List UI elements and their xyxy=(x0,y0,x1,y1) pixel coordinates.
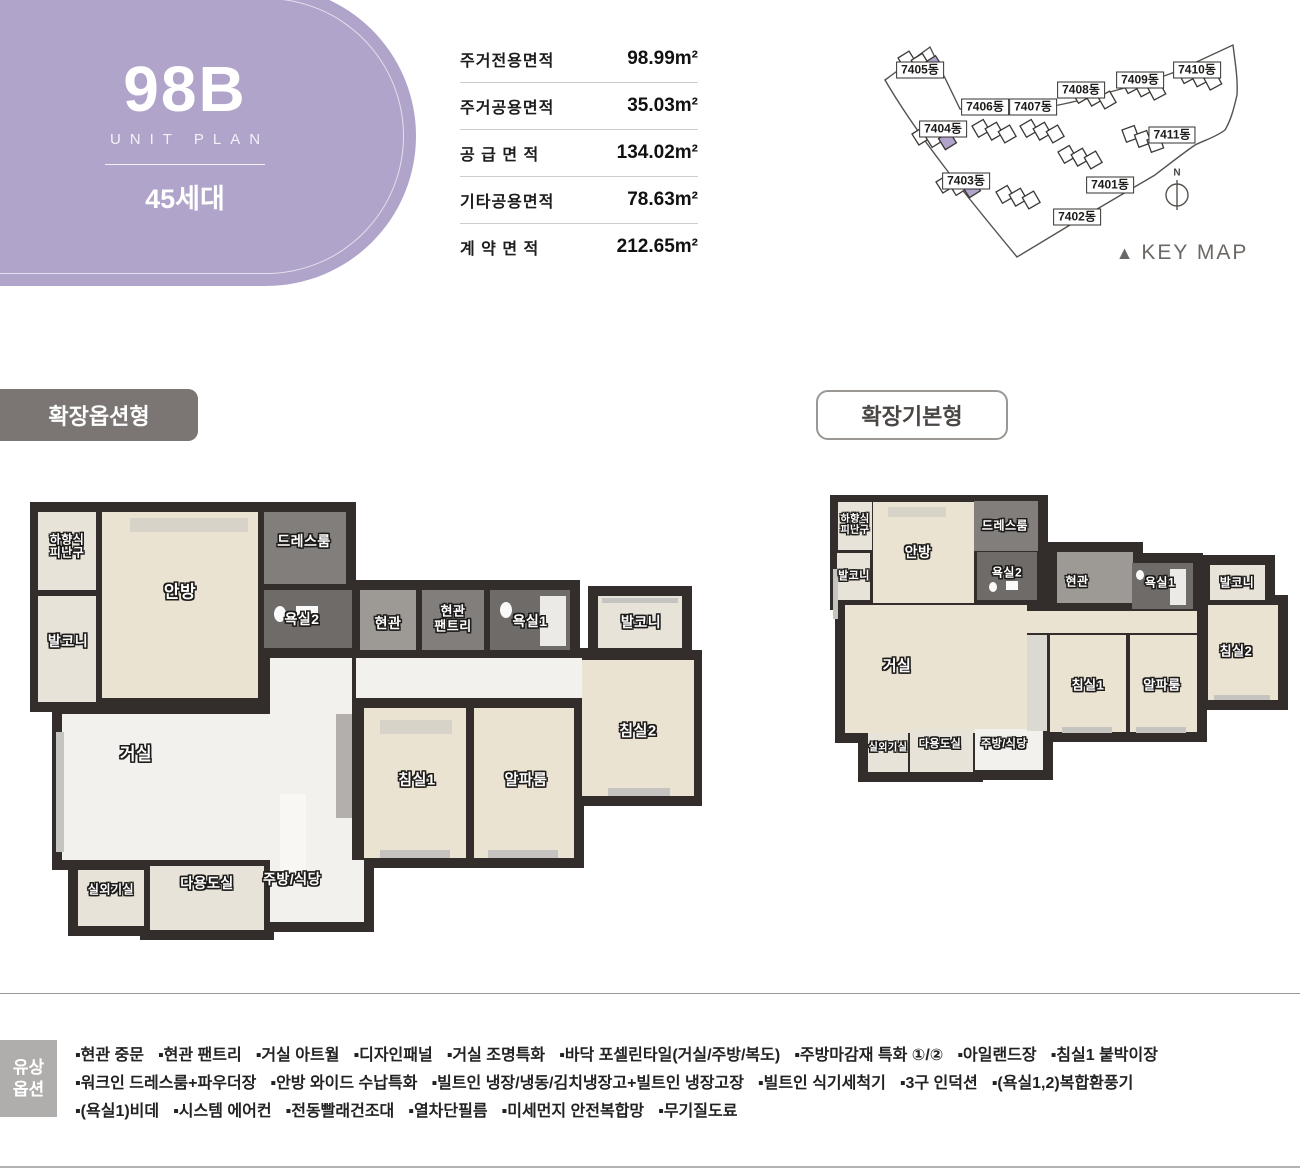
room-label: 드레스룸 xyxy=(277,534,331,550)
paid-option-item: ▪거실 조명특화 xyxy=(447,1047,545,1064)
plan-detail xyxy=(1006,581,1018,590)
paid-option-item: ▪아일랜드장 xyxy=(957,1047,1036,1064)
room-floor xyxy=(910,729,973,772)
area-row-value: 35.03m² xyxy=(627,95,698,117)
area-table: 주거전용면적 98.99m² 주거공용면적 35.03m² 공 급 면 적 13… xyxy=(460,36,698,270)
plan-detail xyxy=(380,720,452,734)
keymap-building-label: 7410동 xyxy=(1173,62,1221,79)
keymap-building xyxy=(996,176,1040,219)
section-divider-bottom xyxy=(0,1166,1300,1168)
room-floor xyxy=(356,658,582,698)
area-row-label: 주거전용면적 xyxy=(460,47,554,71)
room-label: 드레스룸 xyxy=(982,519,1028,532)
paid-options-title-line: 옵션 xyxy=(13,1079,44,1100)
room-floor xyxy=(270,658,352,718)
plan-detail xyxy=(1062,727,1112,733)
keymap-building xyxy=(1058,136,1102,179)
paid-option-item: ▪빌트인 식기세척기 xyxy=(758,1075,886,1092)
room-label: 발코니 xyxy=(621,615,661,631)
area-row-label: 공 급 면 적 xyxy=(460,141,539,165)
room-label: 침실2 xyxy=(1220,645,1253,660)
paid-options-line: ▪(욕실1)비데▪시스템 에어컨▪전동빨래건조대▪열차단필름▪미세먼지 안전복합… xyxy=(75,1098,1295,1126)
keymap-building-unit xyxy=(998,125,1016,143)
room-label: 발코니 xyxy=(48,634,88,650)
paid-option-item: ▪현관 팬트리 xyxy=(158,1047,242,1064)
floor-plan-basic: 하향식 피난구발코니안방드레스룸욕실2현관욕실1발코니침실2거실침실1알파룸실외… xyxy=(830,495,1290,795)
room-label: 욕실2 xyxy=(284,612,319,628)
plan-detail xyxy=(1027,635,1047,731)
room-floor xyxy=(1027,611,1197,633)
room-label: 알파룸 xyxy=(505,773,548,790)
paid-option-item: ▪열차단필름 xyxy=(408,1103,487,1120)
room-label: 하향식 피난구 xyxy=(840,514,869,536)
plan-detail xyxy=(56,732,64,852)
keymap-building-unit xyxy=(1084,151,1102,169)
room-floor xyxy=(62,714,352,860)
keymap-building-unit xyxy=(1046,125,1064,143)
paid-option-item: ▪바닥 포셀린타일(거실/주방/복도) xyxy=(559,1047,780,1064)
keymap-building-label: 7401동 xyxy=(1086,177,1134,194)
room-label: 침실2 xyxy=(619,724,656,741)
keymap-triangle-icon: ▲ xyxy=(1116,243,1136,263)
room-floor xyxy=(78,870,144,926)
paid-options-line: ▪워크인 드레스룸+파우더장▪안방 와이드 수납특화▪빌트인 냉장/냉동/김치냉… xyxy=(75,1070,1295,1098)
area-row-label: 주거공용면적 xyxy=(460,94,554,118)
plan-detail xyxy=(380,850,450,858)
area-row: 주거공용면적 35.03m² xyxy=(460,83,698,130)
plan-detail xyxy=(1214,695,1270,700)
unit-code: 98B xyxy=(123,57,246,121)
section-divider-top xyxy=(0,993,1300,994)
unit-badge: 98B UNIT PLAN 45세대 xyxy=(0,0,416,286)
keymap-building-label: 7408동 xyxy=(1057,82,1105,99)
plan-detail xyxy=(280,794,306,874)
plan-tag-basic: 확장기본형 xyxy=(816,390,1008,440)
keymap-building-unit xyxy=(1022,191,1040,209)
paid-options-list: ▪현관 중문▪현관 팬트리▪거실 아트월▪디자인패널▪거실 조명특화▪바닥 포셀… xyxy=(75,1042,1295,1126)
room-label: 현관 팬트리 xyxy=(434,604,471,633)
paid-option-item: ▪워크인 드레스룸+파우더장 xyxy=(75,1075,256,1092)
keymap-building-label: 7407동 xyxy=(1009,99,1057,116)
floor-plan-option: 하향식 피난구발코니안방드레스룸욕실2현관현관 팬트리욕실1발코니침실2거실침실… xyxy=(30,492,702,944)
paid-option-item: ▪3구 인덕션 xyxy=(900,1075,978,1092)
room-label: 주방/식당 xyxy=(981,738,1027,750)
paid-option-item: ▪(욕실1,2)복합환풍기 xyxy=(992,1075,1134,1092)
paid-option-item: ▪거실 아트월 xyxy=(256,1047,340,1064)
room-label: 거실 xyxy=(883,659,912,676)
keymap-building xyxy=(1020,110,1064,153)
area-row-label: 기타공용면적 xyxy=(460,188,554,212)
keymap-building-label: 7402동 xyxy=(1053,209,1101,226)
plan-detail xyxy=(608,788,670,796)
unit-subtitle: UNIT PLAN xyxy=(101,131,269,148)
plan-detail xyxy=(336,714,352,818)
paid-option-item: ▪무기질도료 xyxy=(658,1103,737,1120)
keymap-building-label: 7405동 xyxy=(896,62,944,79)
room-label: 다용도실 xyxy=(919,738,961,750)
plan-detail xyxy=(130,518,248,532)
paid-option-item: ▪미세먼지 안전복합망 xyxy=(502,1103,645,1120)
room-label: 욕실1 xyxy=(1145,576,1175,589)
room-label: 현관 xyxy=(375,616,402,632)
room-label: 주방/식당 xyxy=(263,872,321,888)
paid-option-item: ▪전동빨래건조대 xyxy=(286,1103,395,1120)
area-row: 계 약 면 적 212.65m² xyxy=(460,224,698,270)
area-row: 기타공용면적 78.63m² xyxy=(460,177,698,224)
bath-fixture xyxy=(1136,570,1144,580)
keymap-caption: ▲KEY MAP xyxy=(1116,241,1249,265)
room-label: 실외기실 xyxy=(869,742,908,753)
room-label: 발코니 xyxy=(838,570,870,582)
paid-option-item: ▪안방 와이드 수납특화 xyxy=(270,1075,417,1092)
keymap-building xyxy=(972,110,1016,153)
paid-option-item: ▪현관 중문 xyxy=(75,1047,144,1064)
keymap-caption-text: KEY MAP xyxy=(1141,241,1248,264)
room-label: 알파룸 xyxy=(1143,679,1180,694)
paid-option-item: ▪시스템 에어컨 xyxy=(173,1103,271,1120)
unit-plan-page: 98B UNIT PLAN 45세대 주거전용면적 98.99m² 주거공용면적… xyxy=(0,0,1300,1172)
room-label: 실외기실 xyxy=(88,883,134,896)
paid-options-title: 유상 옵션 xyxy=(0,1040,57,1117)
paid-option-item: ▪침실1 붙박이장 xyxy=(1051,1047,1158,1064)
paid-option-item: ▪주방마감재 특화 ①/② xyxy=(794,1047,943,1064)
keymap-building-label: 7404동 xyxy=(919,121,967,138)
paid-option-item: ▪빌트인 냉장/냉동/김치냉장고+빌트인 냉장고장 xyxy=(431,1075,743,1092)
room-label: 다용도실 xyxy=(180,876,234,892)
plan-tag-option: 확장옵션형 xyxy=(0,389,198,441)
paid-options-line: ▪현관 중문▪현관 팬트리▪거실 아트월▪디자인패널▪거실 조명특화▪바닥 포셀… xyxy=(75,1042,1295,1070)
plan-detail xyxy=(488,850,558,858)
key-map: N 7405동7406동7407동7408동7409동7410동7404동741… xyxy=(860,30,1295,280)
room-label: 하향식 피난구 xyxy=(50,534,85,561)
keymap-building-label: 7411동 xyxy=(1148,127,1195,144)
paid-options-title-line: 유상 xyxy=(13,1057,44,1078)
room-label: 현관 xyxy=(1065,575,1088,588)
room-label: 침실1 xyxy=(398,773,435,790)
badge-divider xyxy=(105,164,265,165)
unit-badge-content: 98B UNIT PLAN 45세대 xyxy=(0,0,370,286)
unit-households: 45세대 xyxy=(145,177,225,216)
room-label: 발코니 xyxy=(1220,576,1255,589)
area-row-value: 78.63m² xyxy=(627,189,698,211)
room-floor xyxy=(102,512,258,698)
room-floor xyxy=(845,605,1027,733)
keymap-building-label: 7406동 xyxy=(961,99,1009,116)
area-row-value: 212.65m² xyxy=(617,236,698,258)
area-row-value: 98.99m² xyxy=(627,48,698,70)
plan-detail xyxy=(888,507,946,517)
bath-fixture xyxy=(989,582,997,592)
room-label: 욕실1 xyxy=(512,614,547,630)
keymap-building-label: 7403동 xyxy=(942,173,990,190)
room-label: 거실 xyxy=(120,744,152,763)
plan-detail xyxy=(1136,727,1186,733)
area-row: 공 급 면 적 134.02m² xyxy=(460,130,698,177)
area-row-label: 계 약 면 적 xyxy=(460,235,539,259)
keymap-building-label: 7409동 xyxy=(1116,72,1164,89)
area-row-value: 134.02m² xyxy=(617,142,698,164)
paid-option-item: ▪(욕실1)비데 xyxy=(75,1103,159,1120)
room-label: 안방 xyxy=(164,582,196,601)
floor-plan-option-svg xyxy=(30,492,702,944)
area-row: 주거전용면적 98.99m² xyxy=(460,36,698,83)
compass-north-label: N xyxy=(1173,168,1180,179)
room-label: 안방 xyxy=(905,545,932,561)
room-label: 침실1 xyxy=(1072,679,1105,694)
bath-fixture xyxy=(500,602,512,618)
room-label: 욕실2 xyxy=(992,566,1022,579)
paid-option-item: ▪디자인패널 xyxy=(353,1047,432,1064)
plan-detail xyxy=(602,598,678,603)
